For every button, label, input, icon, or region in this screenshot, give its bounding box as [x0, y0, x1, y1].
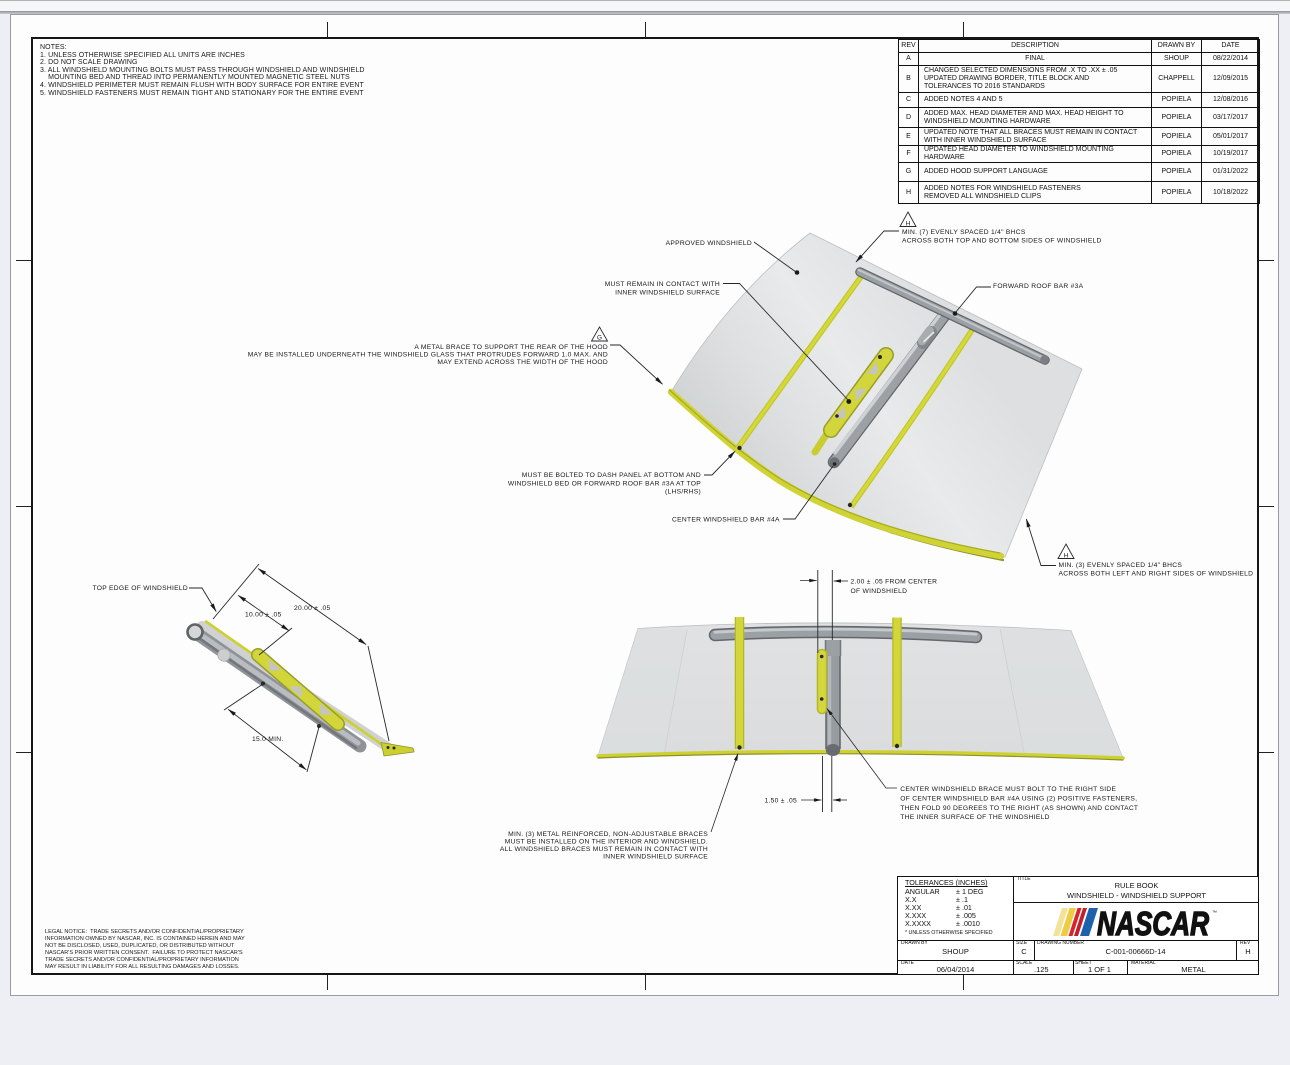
svg-text:1.50 ± .05: 1.50 ± .05	[765, 798, 798, 805]
svg-text:INNER WINDSHIELD SURFACE: INNER WINDSHIELD SURFACE	[615, 290, 720, 297]
svg-text:(LHS/RHS): (LHS/RHS)	[665, 489, 701, 496]
svg-text:MUST BE INSTALLED ON THE INTER: MUST BE INSTALLED ON THE INTERIOR AND WI…	[505, 839, 708, 846]
svg-text:THE INNER SURFACE OF THE WINDS: THE INNER SURFACE OF THE WINDSHIELD	[900, 814, 1049, 821]
svg-text:15.0 MIN.: 15.0 MIN.	[252, 736, 284, 743]
svg-text:MUST REMAIN IN CONTACT WITH: MUST REMAIN IN CONTACT WITH	[605, 281, 720, 288]
svg-text:APPROVED WINDSHIELD: APPROVED WINDSHIELD	[666, 240, 752, 247]
svg-text:CENTER WINDSHIELD BRACE MUST B: CENTER WINDSHIELD BRACE MUST BOLT TO THE…	[900, 786, 1116, 793]
svg-text:H: H	[906, 221, 911, 228]
svg-text:MAY EXTEND ACROSS THE WIDTH OF: MAY EXTEND ACROSS THE WIDTH OF THE HOOD	[437, 359, 608, 366]
svg-text:THEN FOLD 90 DEGREES TO THE RI: THEN FOLD 90 DEGREES TO THE RIGHT (AS SH…	[900, 805, 1138, 812]
svg-text:MIN. (3) EVENLY SPACED 1/4" BH: MIN. (3) EVENLY SPACED 1/4" BHCS	[1059, 562, 1183, 569]
svg-text:MIN. (7) EVENLY SPACED 1/4" BH: MIN. (7) EVENLY SPACED 1/4" BHCS	[902, 229, 1026, 236]
svg-text:INNER WINDSHIELD SURFACE: INNER WINDSHIELD SURFACE	[603, 854, 708, 861]
svg-text:2.00 ± .05 FROM CENTER: 2.00 ± .05 FROM CENTER	[851, 579, 938, 586]
svg-text:H: H	[1064, 553, 1069, 560]
svg-text:ACROSS BOTH LEFT AND RIGHT SID: ACROSS BOTH LEFT AND RIGHT SIDES OF WIND…	[1059, 571, 1254, 578]
svg-text:OF WINDSHIELD: OF WINDSHIELD	[851, 588, 908, 595]
svg-text:20.00 ± .05: 20.00 ± .05	[294, 605, 331, 612]
svg-text:G: G	[597, 335, 602, 342]
svg-text:CENTER WINDSHIELD BAR #4A: CENTER WINDSHIELD BAR #4A	[672, 517, 780, 524]
svg-text:10.00 ± .05: 10.00 ± .05	[245, 612, 282, 619]
svg-text:A METAL BRACE TO SUPPORT THE R: A METAL BRACE TO SUPPORT THE REAR OF THE…	[414, 344, 608, 351]
svg-text:OF CENTER WINDSHIELD BAR #4A U: OF CENTER WINDSHIELD BAR #4A USING (2) P…	[900, 796, 1137, 803]
svg-text:MIN. (3) METAL REINFORCED, NON: MIN. (3) METAL REINFORCED, NON-ADJUSTABL…	[508, 831, 708, 838]
svg-text:TOP EDGE OF WINDSHIELD: TOP EDGE OF WINDSHIELD	[93, 585, 188, 592]
svg-text:FORWARD ROOF BAR #3A: FORWARD ROOF BAR #3A	[993, 283, 1084, 290]
svg-text:WINDSHIELD BED OR FORWARD ROOF: WINDSHIELD BED OR FORWARD ROOF BAR #3A A…	[508, 481, 701, 488]
svg-text:MAY BE INSTALLED UNDERNEATH TH: MAY BE INSTALLED UNDERNEATH THE WINDSHIE…	[248, 352, 608, 359]
svg-text:ACROSS BOTH TOP AND BOTTOM SID: ACROSS BOTH TOP AND BOTTOM SIDES OF WIND…	[902, 238, 1102, 245]
svg-text:ALL WINDSHIELD BRACES MUST REM: ALL WINDSHIELD BRACES MUST REMAIN IN CON…	[500, 846, 708, 853]
svg-text:MUST BE BOLTED TO DASH PANEL A: MUST BE BOLTED TO DASH PANEL AT BOTTOM A…	[522, 472, 701, 479]
